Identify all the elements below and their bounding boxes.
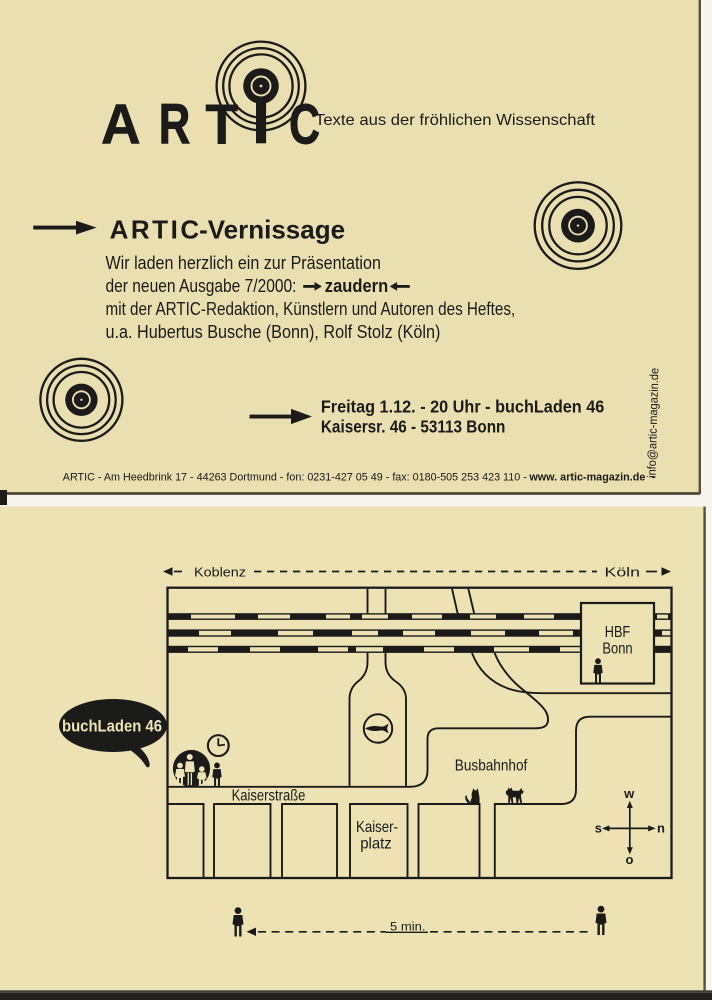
svg-text:ARTIC - Am Heedbrink 17 - 4426: ARTIC - Am Heedbrink 17 - 44263 Dortmund… [63, 471, 527, 483]
svg-text:R: R [159, 92, 190, 156]
svg-text:Kaiserstraße: Kaiserstraße [232, 787, 306, 804]
svg-text:www. artic-magazin.de: www. artic-magazin.de [528, 471, 645, 483]
svg-text:platz: platz [360, 836, 392, 853]
svg-text:w: w [623, 786, 635, 801]
svg-text:Wir laden herzlich ein zur Prä: Wir laden herzlich ein zur Präsentation [106, 252, 381, 273]
svg-text:T: T [205, 92, 238, 156]
svg-text:A: A [101, 92, 141, 156]
svg-text:mit der ARTIC-Redaktion, Künst: mit der ARTIC-Redaktion, Künstlern und A… [106, 298, 516, 319]
svg-text:Koblenz: Koblenz [194, 565, 246, 579]
svg-text:ARTIC: ARTIC [110, 215, 200, 245]
svg-text:der neuen Ausgabe 7/2000:: der neuen Ausgabe 7/2000: [106, 275, 297, 296]
svg-text:s: s [595, 821, 602, 836]
svg-text:zaudern: zaudern [325, 275, 388, 296]
svg-text:Freitag 1.12. - 20 Uhr - buchL: Freitag 1.12. - 20 Uhr - buchLaden 46 [321, 396, 605, 416]
svg-text:Kaiser-: Kaiser- [356, 819, 398, 836]
svg-text:Köln: Köln [605, 565, 641, 579]
svg-text:5 min.: 5 min. [390, 920, 426, 934]
svg-text:o: o [626, 852, 634, 867]
svg-text:-Vernissage: -Vernissage [199, 215, 345, 245]
svg-text:info@artic-magazin.de: info@artic-magazin.de [645, 367, 662, 478]
svg-text:Texte aus der fröhlichen Wisse: Texte aus der fröhlichen Wissenschaft [315, 112, 596, 129]
svg-text:Bonn: Bonn [602, 641, 632, 658]
svg-text:n: n [657, 821, 665, 836]
svg-text:HBF: HBF [605, 624, 630, 641]
svg-text:Kaisersr. 46 - 53113 Bonn: Kaisersr. 46 - 53113 Bonn [321, 417, 506, 437]
svg-text:buchLaden 46: buchLaden 46 [62, 718, 162, 736]
svg-text:Busbahnhof: Busbahnhof [455, 758, 528, 775]
svg-text:u.a. Hubertus Busche (Bonn), R: u.a. Hubertus Busche (Bonn), Rolf Stolz … [106, 321, 441, 342]
